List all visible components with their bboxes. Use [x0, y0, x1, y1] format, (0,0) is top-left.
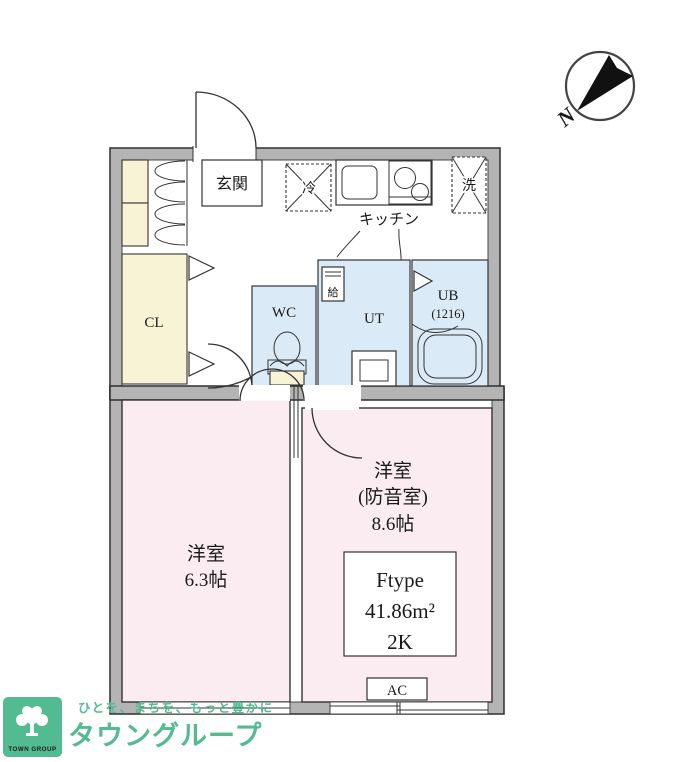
- bedroom-right-soundproof-label: (防音室): [358, 486, 428, 508]
- water-heater-label: 給: [328, 285, 339, 299]
- agency-logo: TOWN GROUP ひとを、まちを、もっと豊かに タウングループ: [3, 697, 274, 757]
- washer-label: 洗: [462, 178, 476, 194]
- floorplan-page: 玄関 CL 冷 洗 キッチン WC: [0, 0, 700, 762]
- bedrooms: 洋室 6.3帖 洋室 (防音室) 8.6帖 Ftype 41.86m² 2K A…: [122, 369, 492, 702]
- bathroom-size-label: (1216): [431, 307, 464, 321]
- bedroom-right-size-label: 8.6帖: [372, 513, 415, 535]
- kitchen-label: キッチン: [359, 212, 419, 228]
- left-door-opening: [239, 385, 290, 401]
- right-door-opening-2: [305, 406, 359, 410]
- logo-square-text: TOWN GROUP: [8, 746, 56, 753]
- shoe-cabinet-top: [122, 160, 148, 203]
- ac-label: AC: [387, 683, 407, 699]
- wc-label: WC: [272, 305, 296, 321]
- bedroom-left-size-label: 6.3帖: [185, 569, 228, 591]
- shoe-cabinet-bottom: [122, 203, 148, 246]
- floorplan-canvas: 玄関 CL 冷 洗 キッチン WC: [0, 0, 700, 762]
- unit-layout-label: 2K: [387, 630, 413, 654]
- bathroom-label: UB: [438, 288, 459, 304]
- logo-brand-name: タウングループ: [68, 720, 262, 751]
- right-door-opening: [303, 385, 361, 406]
- closet-label: CL: [144, 315, 163, 331]
- unit-type-label: Ftype: [376, 568, 424, 592]
- window-right: [330, 702, 488, 714]
- fridge-label: 冷: [302, 181, 316, 197]
- unit-area-label: 41.86m²: [365, 599, 435, 623]
- bedroom-right-label: 洋室: [374, 460, 412, 482]
- logo-slogan: ひとを、まちを、もっと豊かに: [78, 700, 274, 715]
- genkan-label: 玄関: [216, 175, 248, 193]
- bedroom-left-label: 洋室: [187, 543, 225, 565]
- utility-label: UT: [364, 311, 384, 327]
- kitchen-counter: [336, 160, 432, 205]
